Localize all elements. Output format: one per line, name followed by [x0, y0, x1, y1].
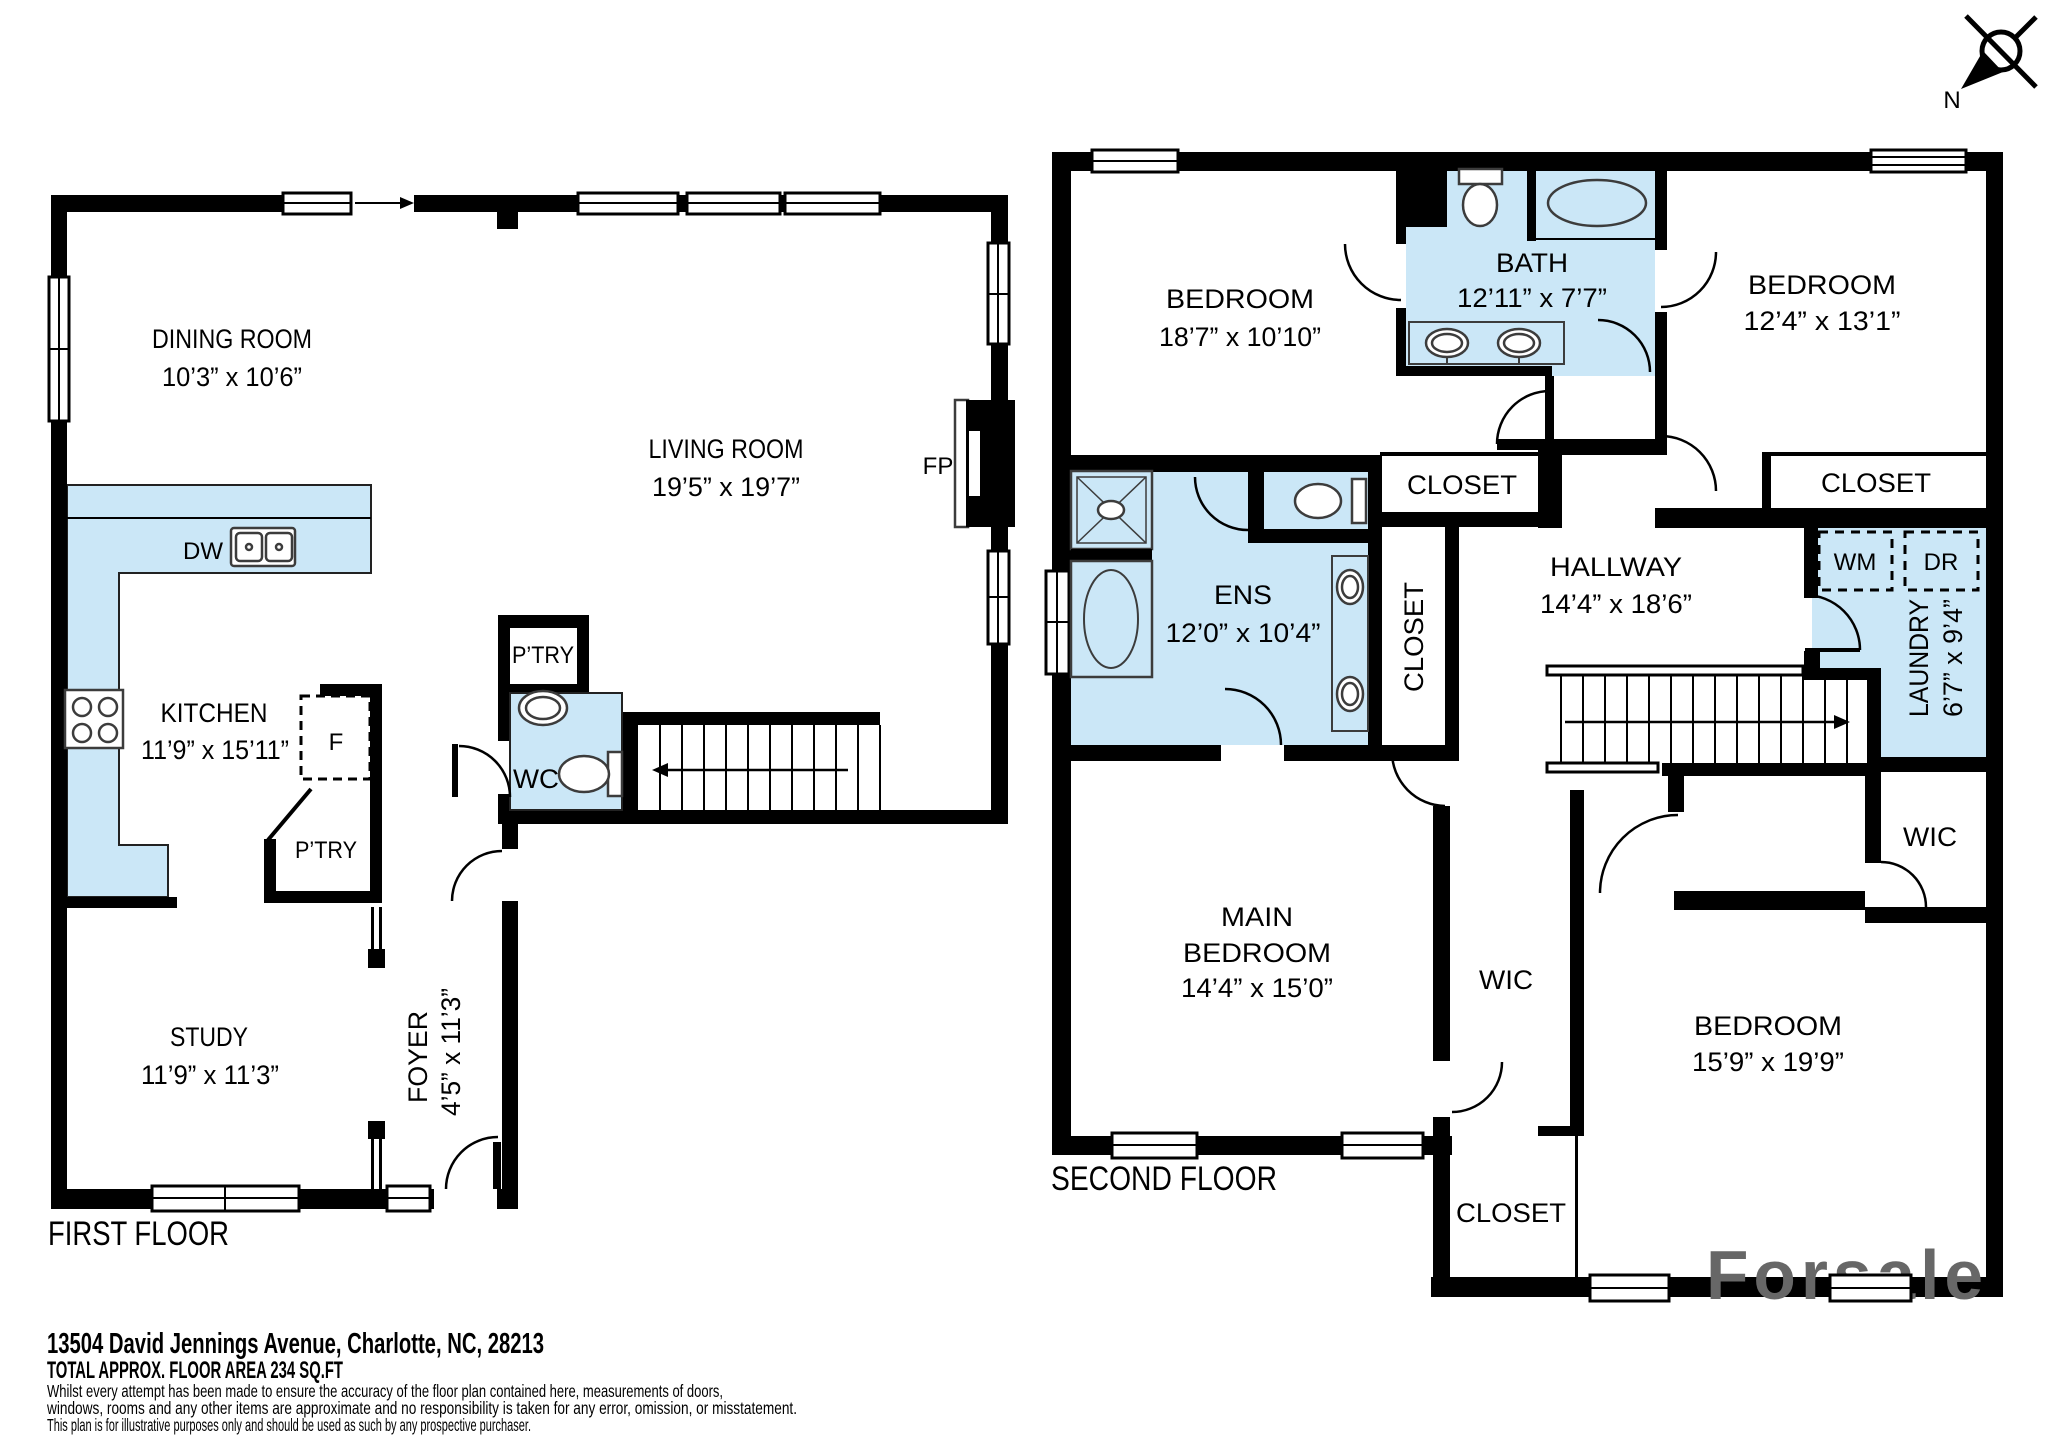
svg-text:ENS: ENS [1214, 580, 1272, 610]
svg-text:HALLWAY: HALLWAY [1550, 552, 1682, 582]
svg-text:FIRST FLOOR: FIRST FLOOR [48, 1215, 229, 1253]
svg-text:WC: WC [513, 764, 559, 794]
svg-text:DINING ROOM: DINING ROOM [152, 324, 312, 354]
svg-text:19’5” x 19’7”: 19’5” x 19’7” [652, 472, 800, 502]
svg-text:CLOSET: CLOSET [1821, 468, 1931, 498]
svg-text:BEDROOM: BEDROOM [1748, 270, 1896, 300]
svg-text:FOYER: FOYER [403, 1011, 433, 1103]
svg-text:MAIN: MAIN [1221, 902, 1293, 932]
svg-text:WM: WM [1834, 549, 1877, 576]
svg-text:This plan is for illustrative: This plan is for illustrative purposes o… [47, 1415, 531, 1435]
svg-text:N: N [1943, 87, 1960, 114]
svg-text:11’9” x 15’11”: 11’9” x 15’11” [141, 735, 289, 765]
svg-text:BEDROOM: BEDROOM [1166, 284, 1314, 314]
svg-text:CLOSET: CLOSET [1399, 582, 1429, 692]
svg-text:WIC: WIC [1479, 965, 1533, 995]
svg-text:WIC: WIC [1903, 822, 1957, 852]
svg-text:14’4” x 18’6”: 14’4” x 18’6” [1540, 589, 1692, 619]
svg-text:BEDROOM: BEDROOM [1183, 938, 1331, 968]
svg-text:12’0” x 10’4”: 12’0” x 10’4” [1166, 618, 1321, 648]
svg-text:FP: FP [923, 453, 954, 480]
svg-text:15’9” x 19’9”: 15’9” x 19’9” [1692, 1047, 1844, 1077]
svg-text:CLOSET: CLOSET [1407, 470, 1517, 500]
svg-text:14’4” x 15’0”: 14’4” x 15’0” [1181, 973, 1333, 1003]
svg-text:4’5” x 11’3”: 4’5” x 11’3” [436, 988, 466, 1116]
svg-text:DW: DW [183, 538, 223, 565]
svg-text:F: F [329, 729, 344, 756]
svg-text:LAUNDRY: LAUNDRY [1904, 599, 1934, 717]
svg-text:10’3” x 10’6”: 10’3” x 10’6” [162, 362, 302, 392]
svg-text:BEDROOM: BEDROOM [1694, 1011, 1842, 1041]
svg-text:LIVING ROOM: LIVING ROOM [649, 434, 804, 464]
svg-text:DR: DR [1924, 549, 1959, 576]
svg-text:13504 David Jennings Avenue, C: 13504 David Jennings Avenue, Charlotte, … [47, 1328, 544, 1360]
svg-text:P’TRY: P’TRY [512, 642, 574, 669]
svg-text:BATH: BATH [1496, 248, 1568, 278]
svg-text:11’9” x 11’3”: 11’9” x 11’3” [141, 1060, 279, 1090]
svg-text:TOTAL APPROX. FLOOR AREA 234 S: TOTAL APPROX. FLOOR AREA 234 SQ.FT [47, 1357, 343, 1384]
svg-text:KITCHEN: KITCHEN [161, 698, 268, 728]
svg-text:6’7” x 9’4”: 6’7” x 9’4” [1938, 599, 1968, 717]
svg-text:CLOSET: CLOSET [1456, 1198, 1566, 1228]
svg-text:P’TRY: P’TRY [295, 837, 357, 864]
svg-text:18’7” x 10’10”: 18’7” x 10’10” [1159, 322, 1321, 352]
svg-text:STUDY: STUDY [170, 1022, 248, 1052]
svg-text:12’11” x 7’7”: 12’11” x 7’7” [1457, 283, 1607, 313]
svg-text:SECOND FLOOR: SECOND FLOOR [1051, 1160, 1277, 1198]
svg-text:12’4” x 13’1”: 12’4” x 13’1” [1744, 306, 1901, 336]
